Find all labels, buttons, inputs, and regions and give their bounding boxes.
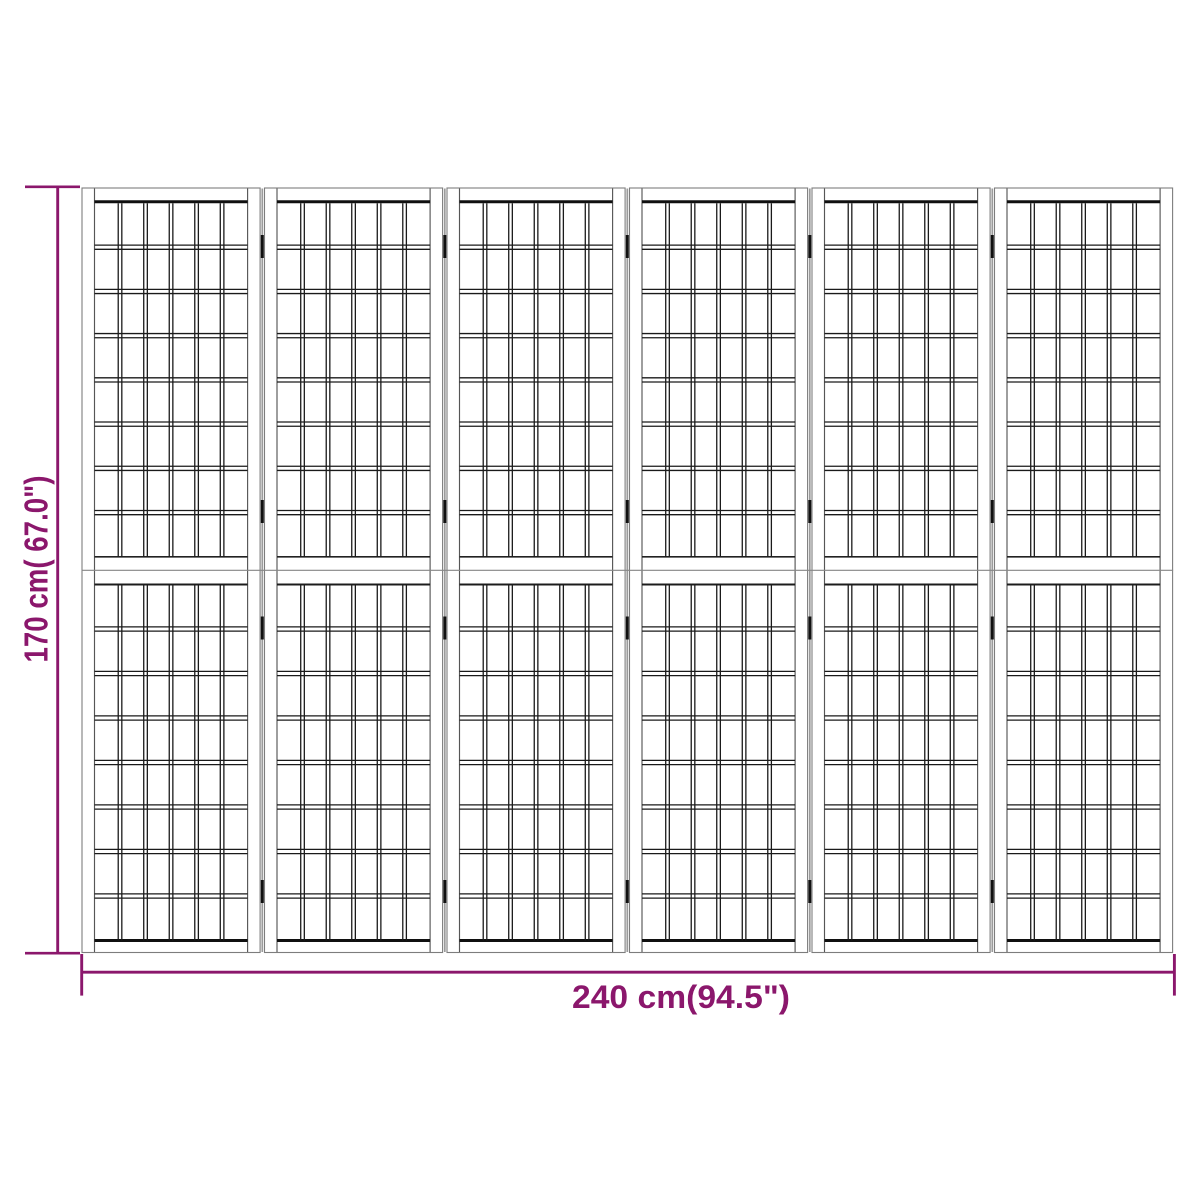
svg-text:240 cm(94.5"): 240 cm(94.5") [572,979,790,1015]
svg-text:170 cm( 67.0"): 170 cm( 67.0") [18,476,55,663]
